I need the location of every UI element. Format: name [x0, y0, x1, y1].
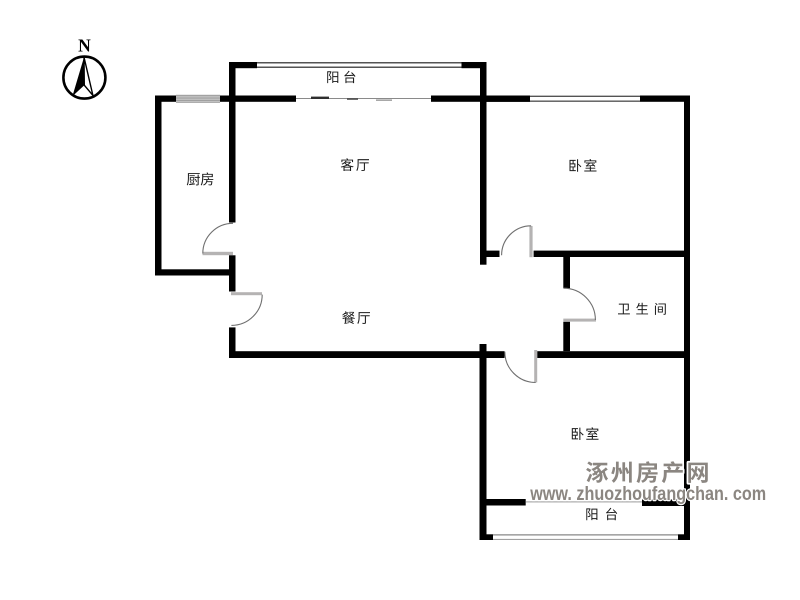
svg-text:N: N	[78, 36, 91, 56]
svg-text:www. zhuozhoufangchan. com: www. zhuozhoufangchan. com	[529, 484, 766, 505]
